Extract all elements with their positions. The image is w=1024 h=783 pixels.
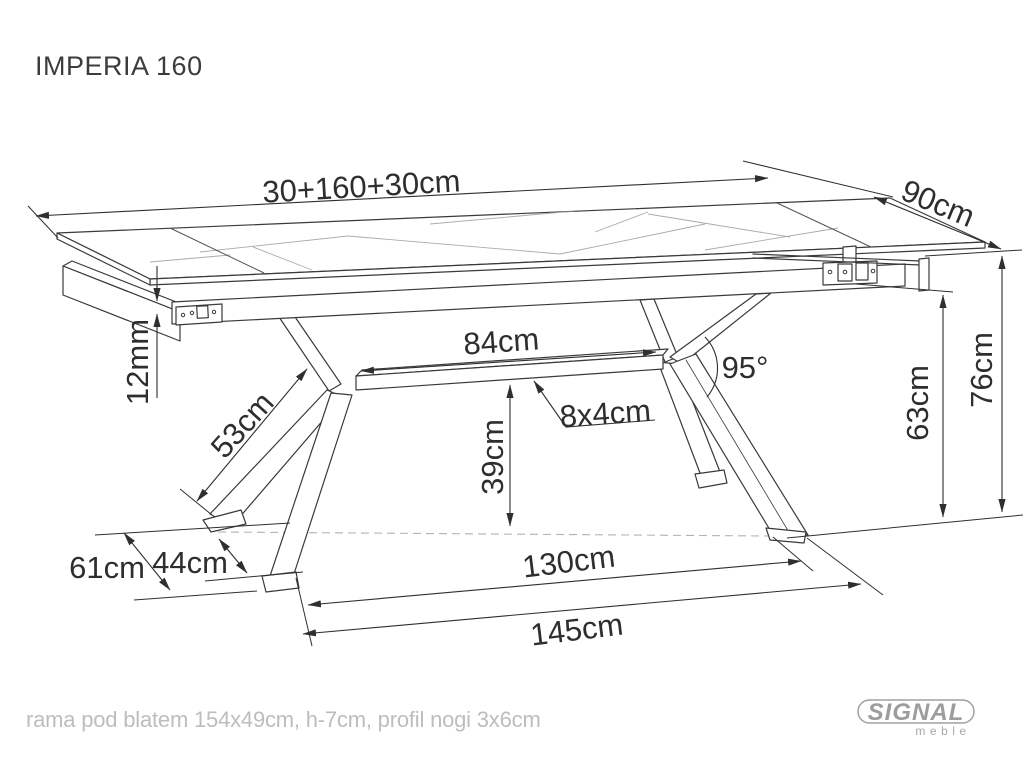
dim-leg-angle: 95° xyxy=(722,350,769,385)
dim-feet-gap-depth: 44cm xyxy=(152,545,228,580)
dim-beam-length: 84cm xyxy=(462,321,540,361)
dim-top-thickness: 12mm xyxy=(120,319,155,405)
right-leg-assembly xyxy=(640,293,808,543)
logo-subtext: meble xyxy=(915,724,970,738)
dim-base-depth: 61cm xyxy=(69,550,145,585)
dim-clearance-height: 63cm xyxy=(900,365,935,441)
logo-text: SIGNAL xyxy=(868,699,965,726)
brand-logo: SIGNAL meble xyxy=(858,699,974,738)
product-title: IMPERIA 160 xyxy=(35,51,203,81)
dim-base-length: 145cm xyxy=(528,607,625,653)
dim-table-height: 76cm xyxy=(964,332,999,408)
end-support-post xyxy=(919,258,929,291)
dim-beam-profile: 8x4cm xyxy=(559,393,653,434)
dim-total-length: 30+160+30cm xyxy=(261,163,461,209)
footer-note: rama pod blatem 154x49cm, h-7cm, profil … xyxy=(26,707,541,732)
left-upper-arm xyxy=(279,314,341,391)
technical-drawing: IMPERIA 160 30+160+30cm 90cm 84cm 95° 8x… xyxy=(0,0,1024,783)
dim-feet-span: 130cm xyxy=(520,539,617,585)
dim-beam-clearance: 39cm xyxy=(475,419,510,495)
slide-bracket-left xyxy=(176,304,222,325)
